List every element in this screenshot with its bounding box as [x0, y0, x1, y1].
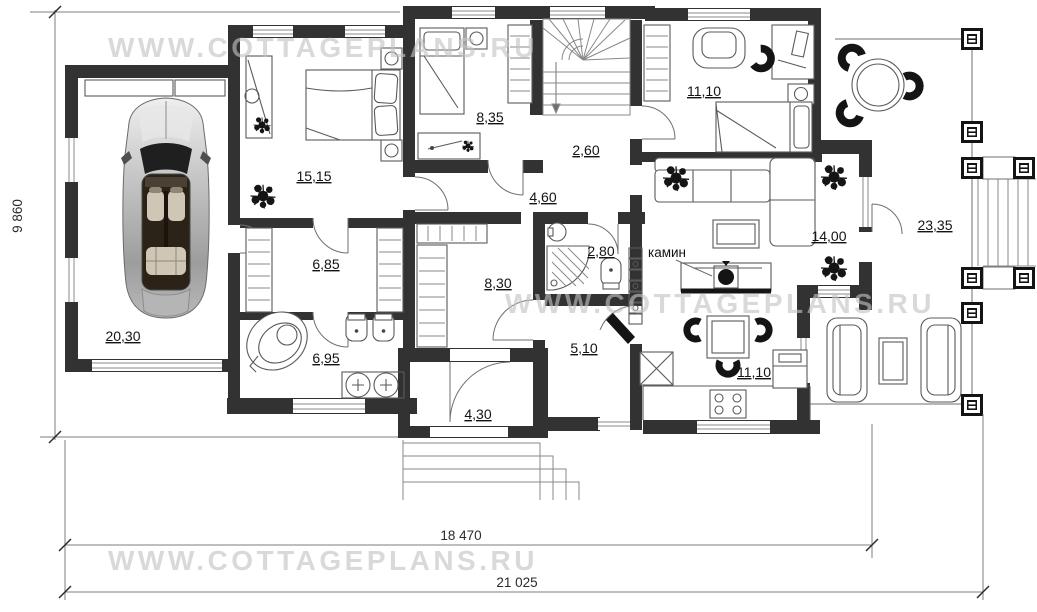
car — [121, 98, 211, 318]
kitchen-furniture — [640, 316, 810, 420]
area-label-office: 11,10 — [687, 83, 721, 99]
area-label-living-room: 14,00 — [811, 228, 846, 244]
area-label-hall: 5,10 — [570, 340, 597, 356]
porch-steps — [403, 440, 579, 500]
watermark-top: WWW.COTTAGEPLANS.RU — [108, 32, 538, 63]
dimension-side: 9 860 — [10, 199, 25, 233]
area-label-corridor: 4,60 — [529, 189, 556, 205]
area-label-stair-hall: 2,60 — [572, 142, 599, 158]
office-furniture — [644, 25, 814, 152]
floor-plan-drawing: 20,30 15,15 8,35 2,60 4,60 11,10 6,85 8,… — [0, 0, 1037, 612]
dimension-inner-width: 18 470 — [440, 528, 481, 543]
floor-plan-page: 20,30 15,15 8,35 2,60 4,60 11,10 6,85 8,… — [0, 0, 1037, 612]
garage-door — [92, 360, 222, 371]
area-label-bathroom: 6,95 — [312, 350, 339, 366]
area-label-wardrobe: 6,85 — [312, 256, 339, 272]
terrace-dining-set — [835, 43, 919, 127]
staircase — [543, 19, 630, 115]
watermark-bottom: WWW.COTTAGEPLANS.RU — [108, 545, 538, 576]
garage-contents — [85, 80, 225, 318]
area-label-bedroom: 8,35 — [476, 109, 503, 125]
fireplace-label: камин — [648, 245, 686, 260]
area-label-kitchen: 11,10 — [737, 364, 771, 380]
master-bedroom-furniture — [245, 48, 402, 209]
area-label-master-bedroom: 15,15 — [296, 168, 331, 184]
area-label-shower-room: 2,80 — [587, 243, 614, 259]
terrace-lounge-set — [827, 318, 961, 402]
hallway-closet — [417, 224, 487, 347]
fireplace — [681, 261, 771, 291]
dimension-outer-width: 21 025 — [496, 575, 537, 590]
area-label-garage: 20,30 — [105, 328, 140, 344]
terrace-side-steps — [978, 179, 1036, 266]
area-label-vestibule: 4,30 — [464, 406, 491, 422]
area-label-terrace: 23,35 — [917, 217, 952, 233]
living-room-furniture — [655, 158, 847, 291]
watermark-middle: WWW.COTTAGEPLANS.RU — [505, 288, 935, 319]
